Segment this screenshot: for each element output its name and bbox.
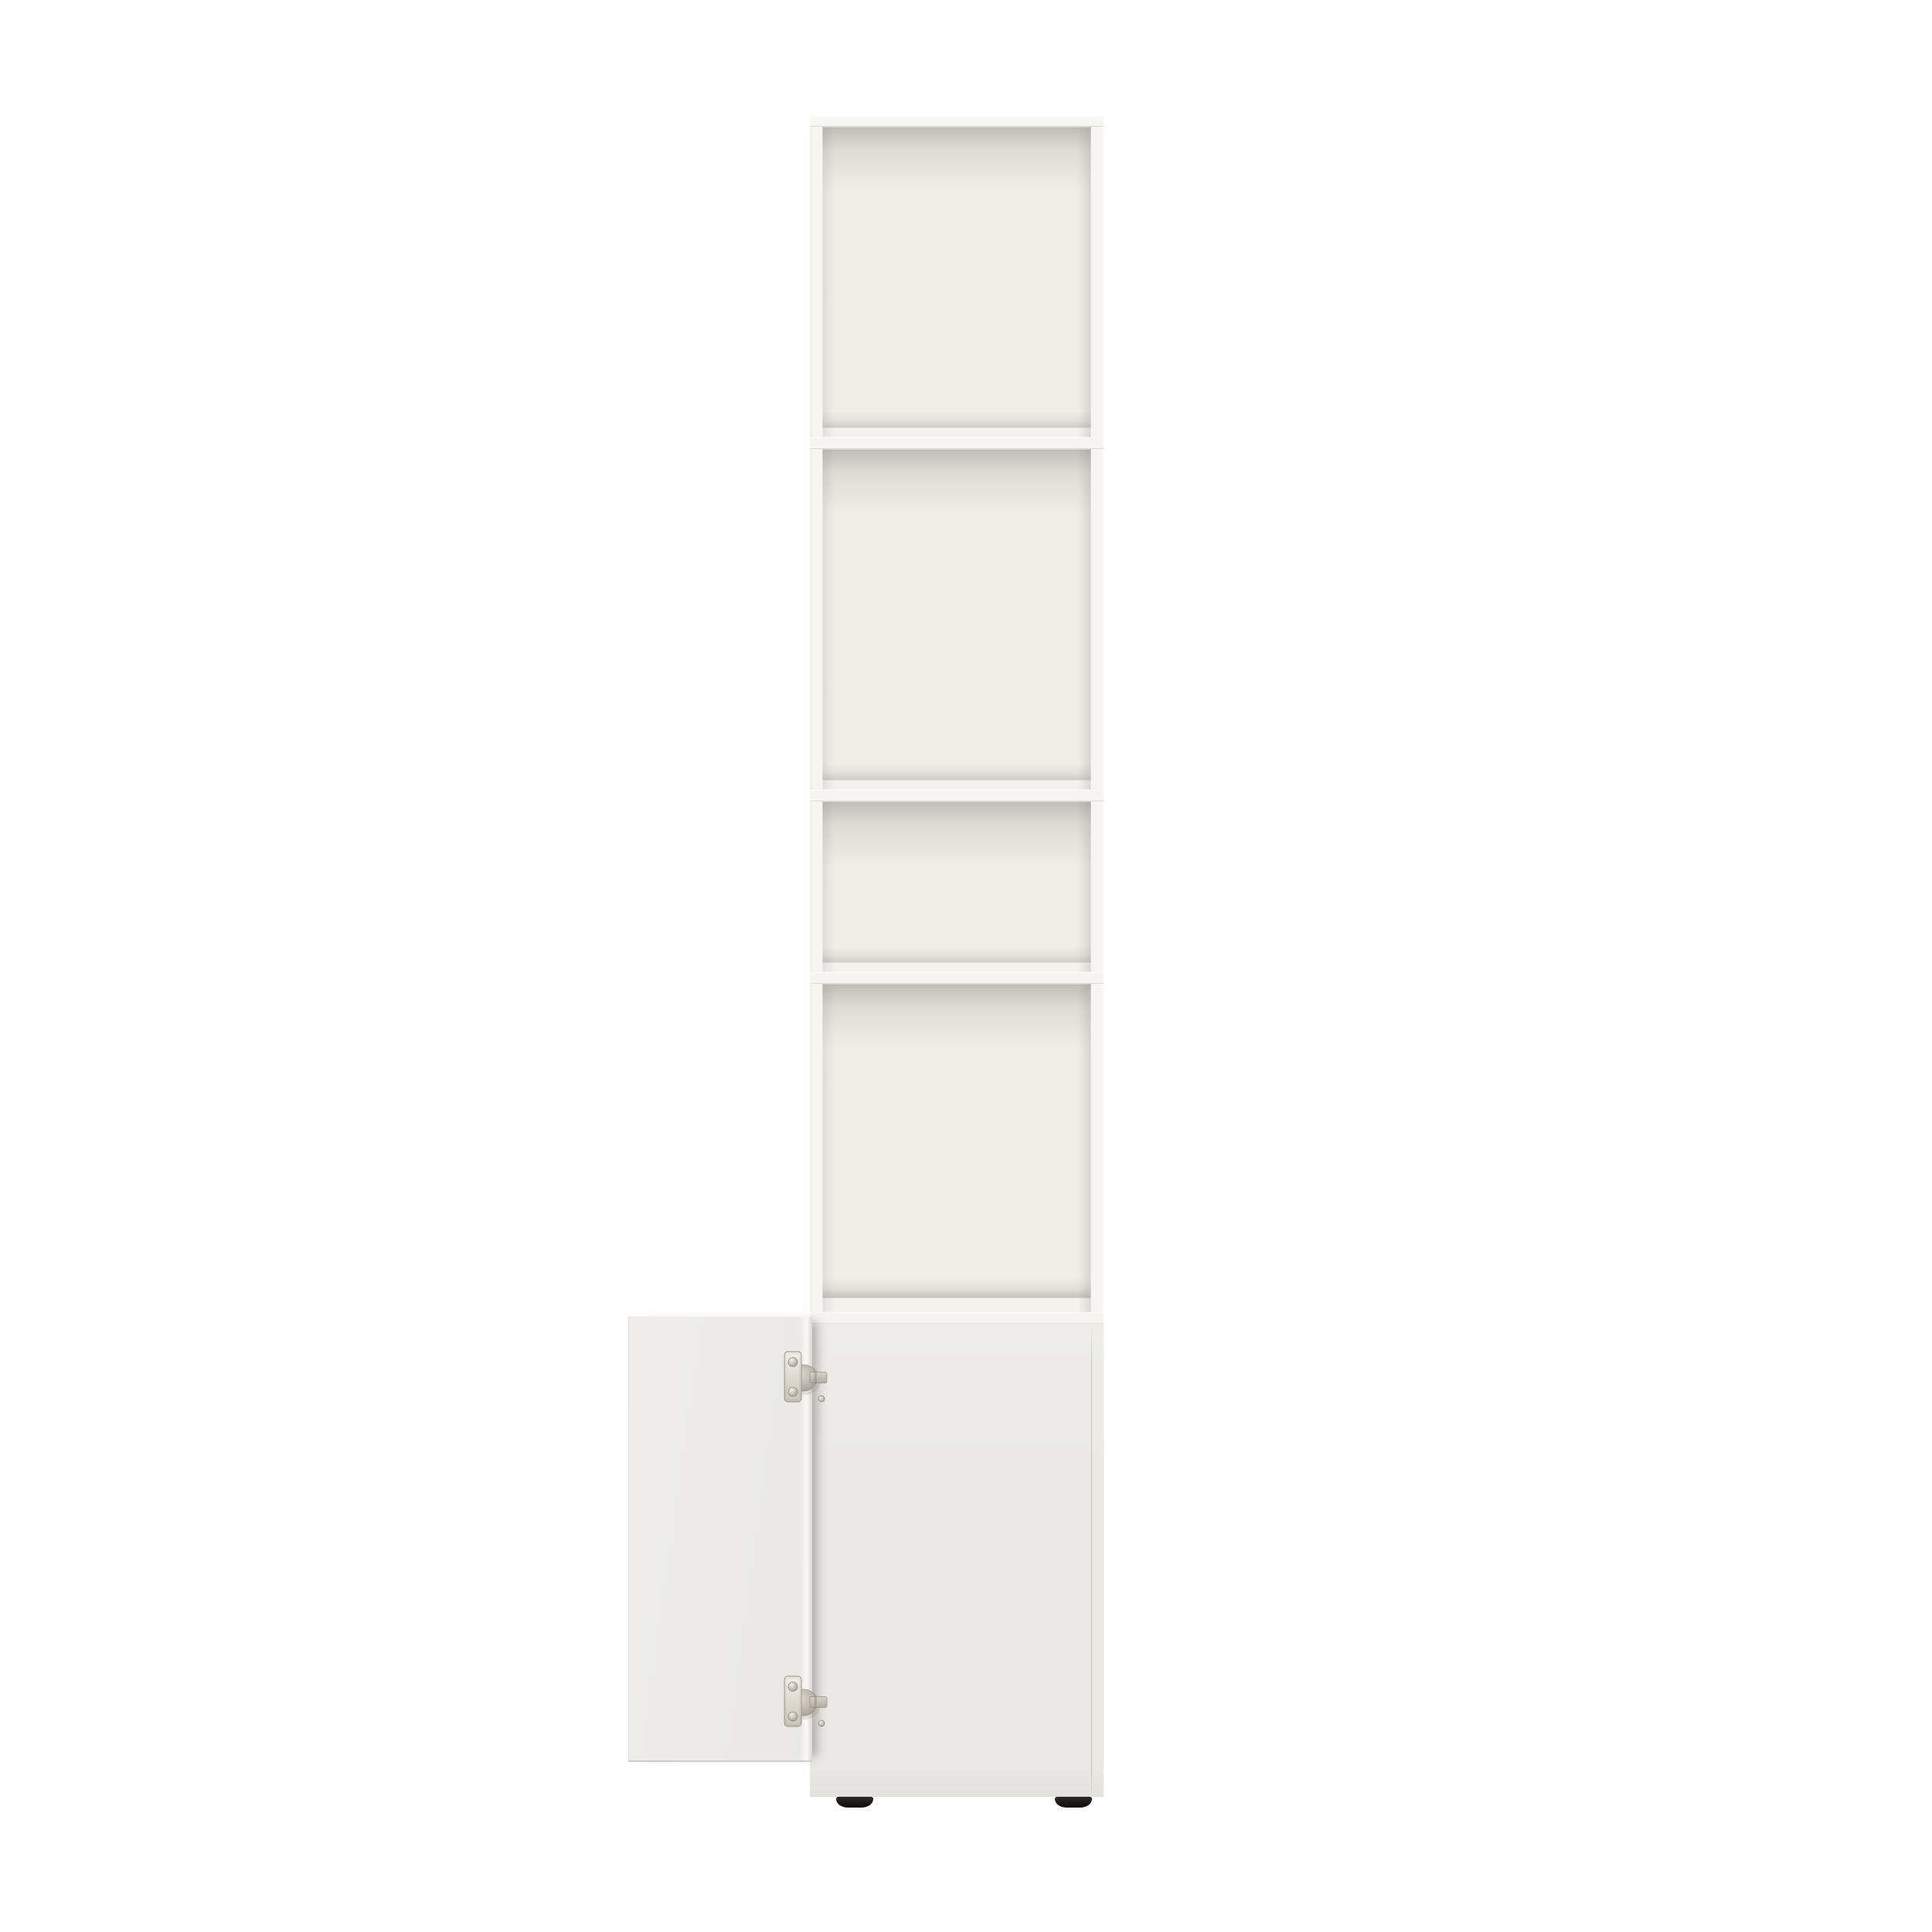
lower-compartment-floor-edge [810,1312,1104,1324]
cabinet-foot-right [1055,1797,1092,1808]
door-hinge-bottom-icon [781,1674,828,1731]
hinge-shape [784,1676,827,1726]
cabinet-foot-left [836,1797,873,1808]
open-compartment-1 [822,127,1091,437]
hinge-shape [784,1352,827,1402]
open-compartment-2 [822,449,1091,790]
bookcase-body [810,116,1104,1797]
door-hinge-top-icon [781,1349,828,1406]
shelf-divider-3 [810,972,1104,984]
product-photo-scene [0,0,1932,1932]
shelf-divider-1 [810,437,1104,449]
open-compartment-4 [822,984,1091,1312]
shelf-divider-2 [810,790,1104,801]
cabinet-top-edge [810,116,1104,127]
open-compartment-3 [822,801,1091,972]
panel-seam-line [1091,1324,1092,1797]
lower-cabinet-front [810,1324,1104,1797]
